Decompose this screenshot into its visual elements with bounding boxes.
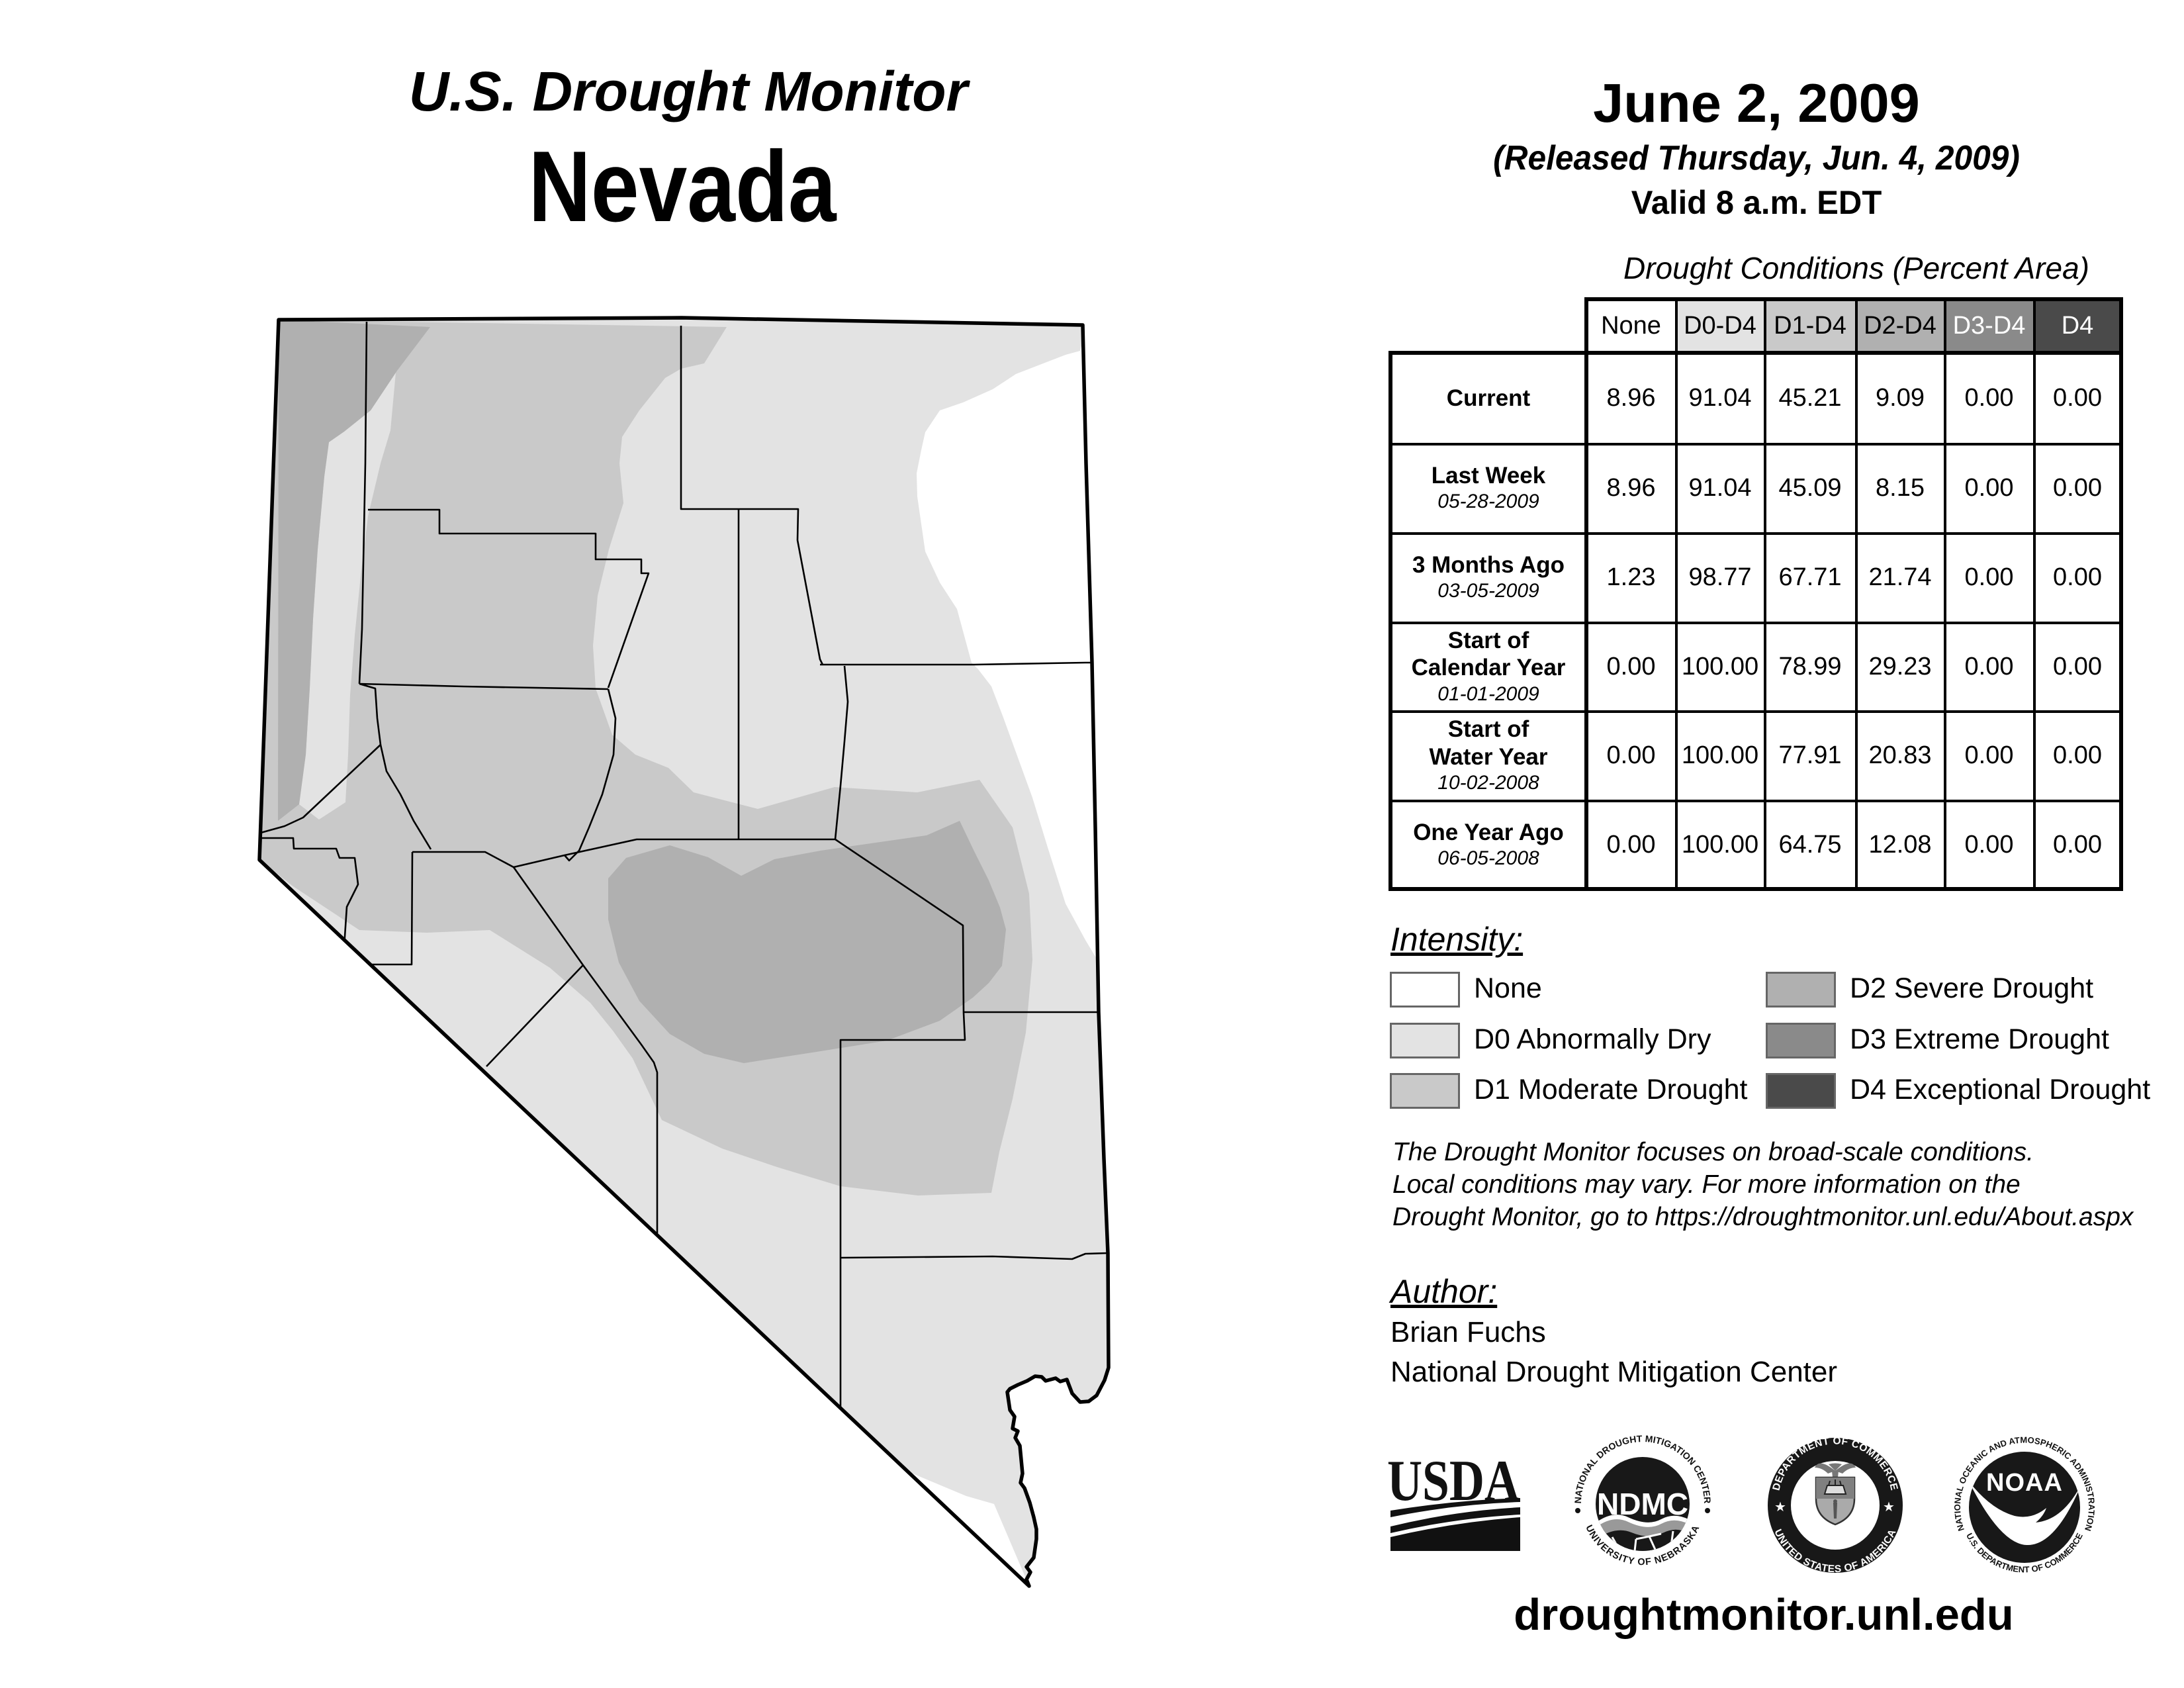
svg-text:NDMC: NDMC — [1597, 1487, 1688, 1521]
svg-text:★: ★ — [1774, 1500, 1786, 1515]
svg-text:NOAA: NOAA — [1986, 1469, 2063, 1497]
svg-text:★: ★ — [1883, 1500, 1895, 1515]
